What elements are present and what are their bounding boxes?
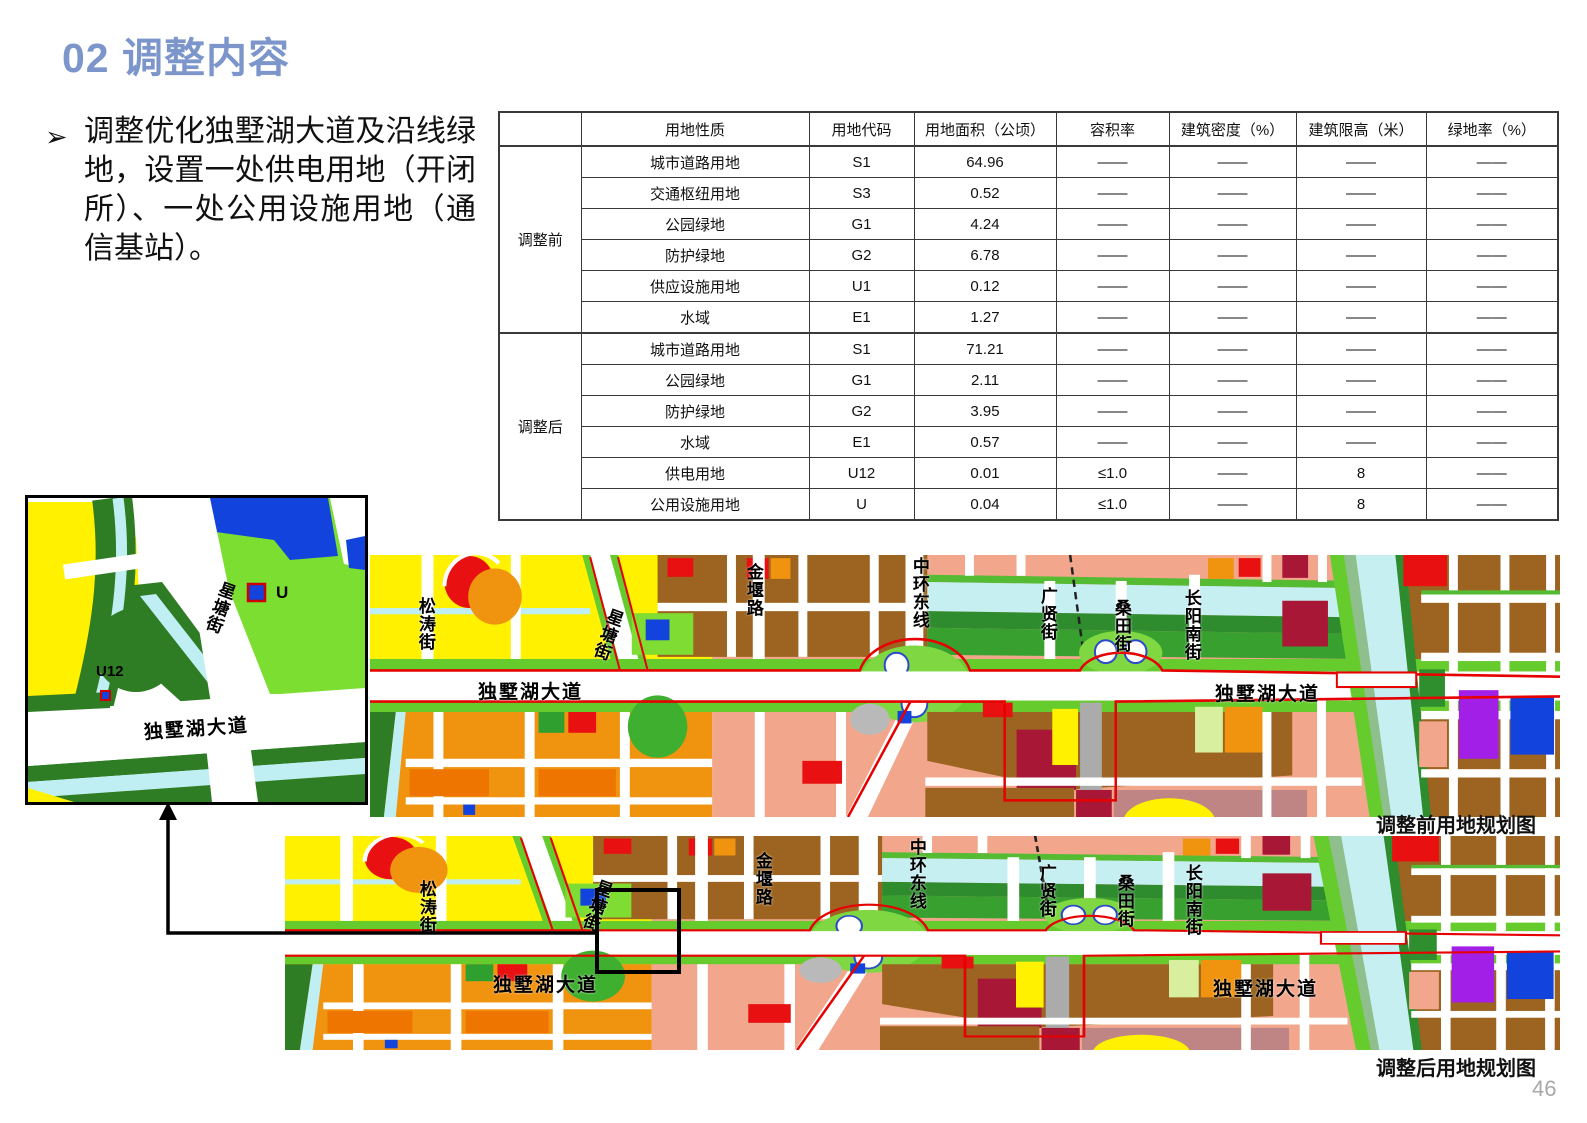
- table-cell: ——: [1056, 302, 1169, 334]
- table-cell: 供应设施用地: [581, 271, 809, 302]
- table-header-cell: 用地代码: [809, 112, 914, 146]
- table-cell: ——: [1056, 333, 1169, 365]
- page-title: 02 调整内容: [62, 24, 290, 84]
- table-cell: 4.24: [914, 209, 1056, 240]
- table-cell: ——: [1169, 209, 1296, 240]
- table-cell: ——: [1169, 333, 1296, 365]
- table-cell: ——: [1426, 427, 1558, 458]
- table-cell: ——: [1056, 427, 1169, 458]
- table-cell: 2.11: [914, 365, 1056, 396]
- table-cell: ——: [1426, 396, 1558, 427]
- table-cell: 供电用地: [581, 458, 809, 489]
- table-cell: 公园绿地: [581, 365, 809, 396]
- bullet-text: 调整优化独墅湖大道及沿线绿地，设置一处供电用地（开闭所）、一处公用设施用地（通信…: [84, 112, 476, 268]
- street-label-songtao: 松涛街: [416, 597, 434, 651]
- table-cell: U1: [809, 271, 914, 302]
- caption-map-before: 调整前用地规划图: [1376, 809, 1536, 838]
- table-cell: 城市道路用地: [581, 146, 809, 178]
- table-cell: 6.78: [914, 240, 1056, 271]
- table-header-cell: 容积率: [1056, 112, 1169, 146]
- table-cell: E1: [809, 427, 914, 458]
- table-cell: ——: [1056, 365, 1169, 396]
- callout-arrow: [150, 800, 620, 945]
- table-cell: 64.96: [914, 146, 1056, 178]
- table-cell: 交通枢纽用地: [581, 178, 809, 209]
- street-label-guangxian: 广贤街: [1038, 587, 1056, 641]
- street-label-guangxian: 广贤街: [1037, 864, 1055, 918]
- table-cell: ——: [1169, 302, 1296, 334]
- table-header-cell: 绿地率（%）: [1426, 112, 1558, 146]
- table-row: 水域E10.57————————: [499, 427, 1558, 458]
- table-cell: S1: [809, 146, 914, 178]
- inset-artwork: [28, 498, 365, 802]
- table-row: 供应设施用地U10.12————————: [499, 271, 1558, 302]
- table-cell: ——: [1056, 271, 1169, 302]
- map-before-adjustment: 松涛街 星塘街 金堰路 中环东线 广贤街 桑田街 长阳南街 独墅湖大道 独墅湖大…: [370, 555, 1560, 817]
- table-header-cell: 建筑密度（%）: [1169, 112, 1296, 146]
- table-cell: ——: [1296, 209, 1426, 240]
- table-cell: 公用设施用地: [581, 489, 809, 521]
- table-cell: 0.57: [914, 427, 1056, 458]
- table-cell: ——: [1169, 240, 1296, 271]
- table-cell: ——: [1056, 240, 1169, 271]
- table-cell: ——: [1296, 178, 1426, 209]
- table-cell: ——: [1296, 240, 1426, 271]
- table-cell: ——: [1426, 489, 1558, 521]
- table-cell: ——: [1296, 302, 1426, 334]
- table-row: 防护绿地G23.95————————: [499, 396, 1558, 427]
- street-label-sangtian: 桑田街: [1115, 874, 1133, 928]
- table-cell: ——: [1426, 240, 1558, 271]
- table-cell: ——: [1056, 146, 1169, 178]
- street-label-dushu-west: 独墅湖大道: [478, 683, 583, 703]
- table-group-label: 调整后: [499, 333, 581, 520]
- street-label-zhonghuan: 中环东线: [910, 557, 928, 629]
- table-cell: ——: [1169, 489, 1296, 521]
- table-cell: 0.04: [914, 489, 1056, 521]
- table-cell: ——: [1169, 178, 1296, 209]
- street-label-jinyan: 金堰路: [753, 852, 771, 906]
- table-cell: ——: [1296, 427, 1426, 458]
- table-cell: 水域: [581, 302, 809, 334]
- table-header-cell: 用地性质: [581, 112, 809, 146]
- table-cell: ——: [1169, 146, 1296, 178]
- inset-u-parcel-label: U: [276, 584, 288, 602]
- table-cell: ——: [1296, 146, 1426, 178]
- table-cell: ——: [1426, 146, 1558, 178]
- table-cell: S1: [809, 333, 914, 365]
- table-cell: E1: [809, 302, 914, 334]
- table-cell: 0.12: [914, 271, 1056, 302]
- table-cell: 8: [1296, 489, 1426, 521]
- table-row: 公园绿地G14.24————————: [499, 209, 1558, 240]
- table-cell: ——: [1296, 271, 1426, 302]
- table-cell: ——: [1426, 333, 1558, 365]
- table-cell: ——: [1169, 458, 1296, 489]
- table-cell: U12: [809, 458, 914, 489]
- table-cell: ——: [1296, 333, 1426, 365]
- street-label-sangtian: 桑田街: [1112, 599, 1130, 653]
- table-cell: G1: [809, 209, 914, 240]
- table-cell: ——: [1056, 396, 1169, 427]
- table-cell: 公园绿地: [581, 209, 809, 240]
- table-cell: G2: [809, 240, 914, 271]
- table-cell: G1: [809, 365, 914, 396]
- street-label-changyangnan: 长阳南街: [1182, 589, 1200, 661]
- table-cell: ——: [1169, 427, 1296, 458]
- table-header-cell: [499, 112, 581, 146]
- bullet-arrow-icon: ➢: [45, 122, 68, 153]
- table-cell: ——: [1056, 209, 1169, 240]
- table-group-label: 调整前: [499, 146, 581, 333]
- table-row: 供电用地U120.01≤1.0——8——: [499, 458, 1558, 489]
- zoom-highlight-box: [595, 888, 681, 974]
- table-cell: 0.01: [914, 458, 1056, 489]
- street-label-dushu-west: 独墅湖大道: [493, 976, 598, 996]
- table-cell: 防护绿地: [581, 396, 809, 427]
- table-cell: 71.21: [914, 333, 1056, 365]
- land-use-table: 用地性质用地代码用地面积（公顷）容积率建筑密度（%）建筑限高（米）绿地率（%） …: [498, 111, 1559, 521]
- table-cell: ——: [1426, 302, 1558, 334]
- table-row: 水域E11.27————————: [499, 302, 1558, 334]
- table-header-row: 用地性质用地代码用地面积（公顷）容积率建筑密度（%）建筑限高（米）绿地率（%）: [499, 112, 1558, 146]
- table-cell: 3.95: [914, 396, 1056, 427]
- table-cell: 防护绿地: [581, 240, 809, 271]
- table-row: 调整后城市道路用地S171.21————————: [499, 333, 1558, 365]
- table-cell: ——: [1296, 396, 1426, 427]
- street-label-jinyan: 金堰路: [744, 563, 762, 617]
- table-cell: S3: [809, 178, 914, 209]
- table-cell: ——: [1426, 458, 1558, 489]
- caption-map-after: 调整后用地规划图: [1376, 1052, 1536, 1081]
- table-row: 防护绿地G26.78————————: [499, 240, 1558, 271]
- table-cell: ——: [1426, 271, 1558, 302]
- table-row: 调整前城市道路用地S164.96————————: [499, 146, 1558, 178]
- table-cell: U: [809, 489, 914, 521]
- street-label-zhonghuan: 中环东线: [907, 838, 925, 910]
- table-cell: ——: [1169, 271, 1296, 302]
- table-cell: ——: [1426, 365, 1558, 396]
- table-row: 公园绿地G12.11————————: [499, 365, 1558, 396]
- table-cell: ——: [1169, 365, 1296, 396]
- slide: { "slide": { "title": "02 调整内容", "bullet…: [0, 0, 1587, 1123]
- table-cell: 水域: [581, 427, 809, 458]
- street-label-changyangnan: 长阳南街: [1183, 864, 1201, 936]
- table-cell: ——: [1169, 396, 1296, 427]
- table-cell: ——: [1296, 365, 1426, 396]
- table-cell: ——: [1056, 178, 1169, 209]
- page-number: 46: [1532, 1076, 1556, 1102]
- table-cell: 1.27: [914, 302, 1056, 334]
- table-cell: ——: [1426, 178, 1558, 209]
- table-cell: ≤1.0: [1056, 458, 1169, 489]
- table-row: 公用设施用地U0.04≤1.0——8——: [499, 489, 1558, 521]
- inset-u12-parcel-label: U12: [96, 664, 124, 680]
- street-label-dushu-east: 独墅湖大道: [1215, 685, 1320, 705]
- table-cell: G2: [809, 396, 914, 427]
- table-cell: ≤1.0: [1056, 489, 1169, 521]
- table-header-cell: 建筑限高（米）: [1296, 112, 1426, 146]
- table-cell: 8: [1296, 458, 1426, 489]
- table-header-cell: 用地面积（公顷）: [914, 112, 1056, 146]
- table-cell: 0.52: [914, 178, 1056, 209]
- table-cell: ——: [1426, 209, 1558, 240]
- table-row: 交通枢纽用地S30.52————————: [499, 178, 1558, 209]
- table-cell: 城市道路用地: [581, 333, 809, 365]
- street-label-dushu-east: 独墅湖大道: [1213, 980, 1318, 1000]
- inset-detail-map: 星塘街 U U12 独墅湖大道: [25, 495, 368, 805]
